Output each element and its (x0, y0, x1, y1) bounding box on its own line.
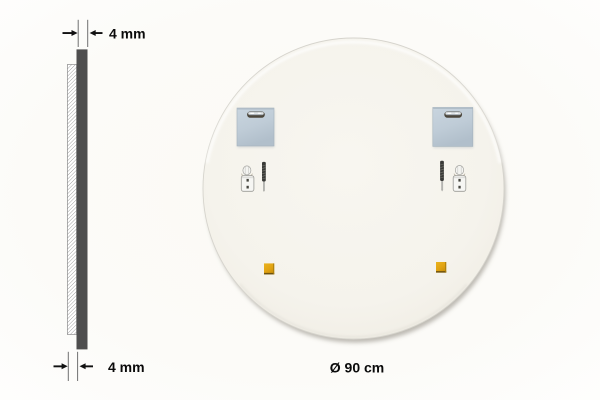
svg-text:4 mm: 4 mm (108, 359, 145, 375)
svg-text:Ø 90 cm: Ø 90 cm (330, 360, 384, 376)
svg-text:4 mm: 4 mm (109, 25, 146, 41)
